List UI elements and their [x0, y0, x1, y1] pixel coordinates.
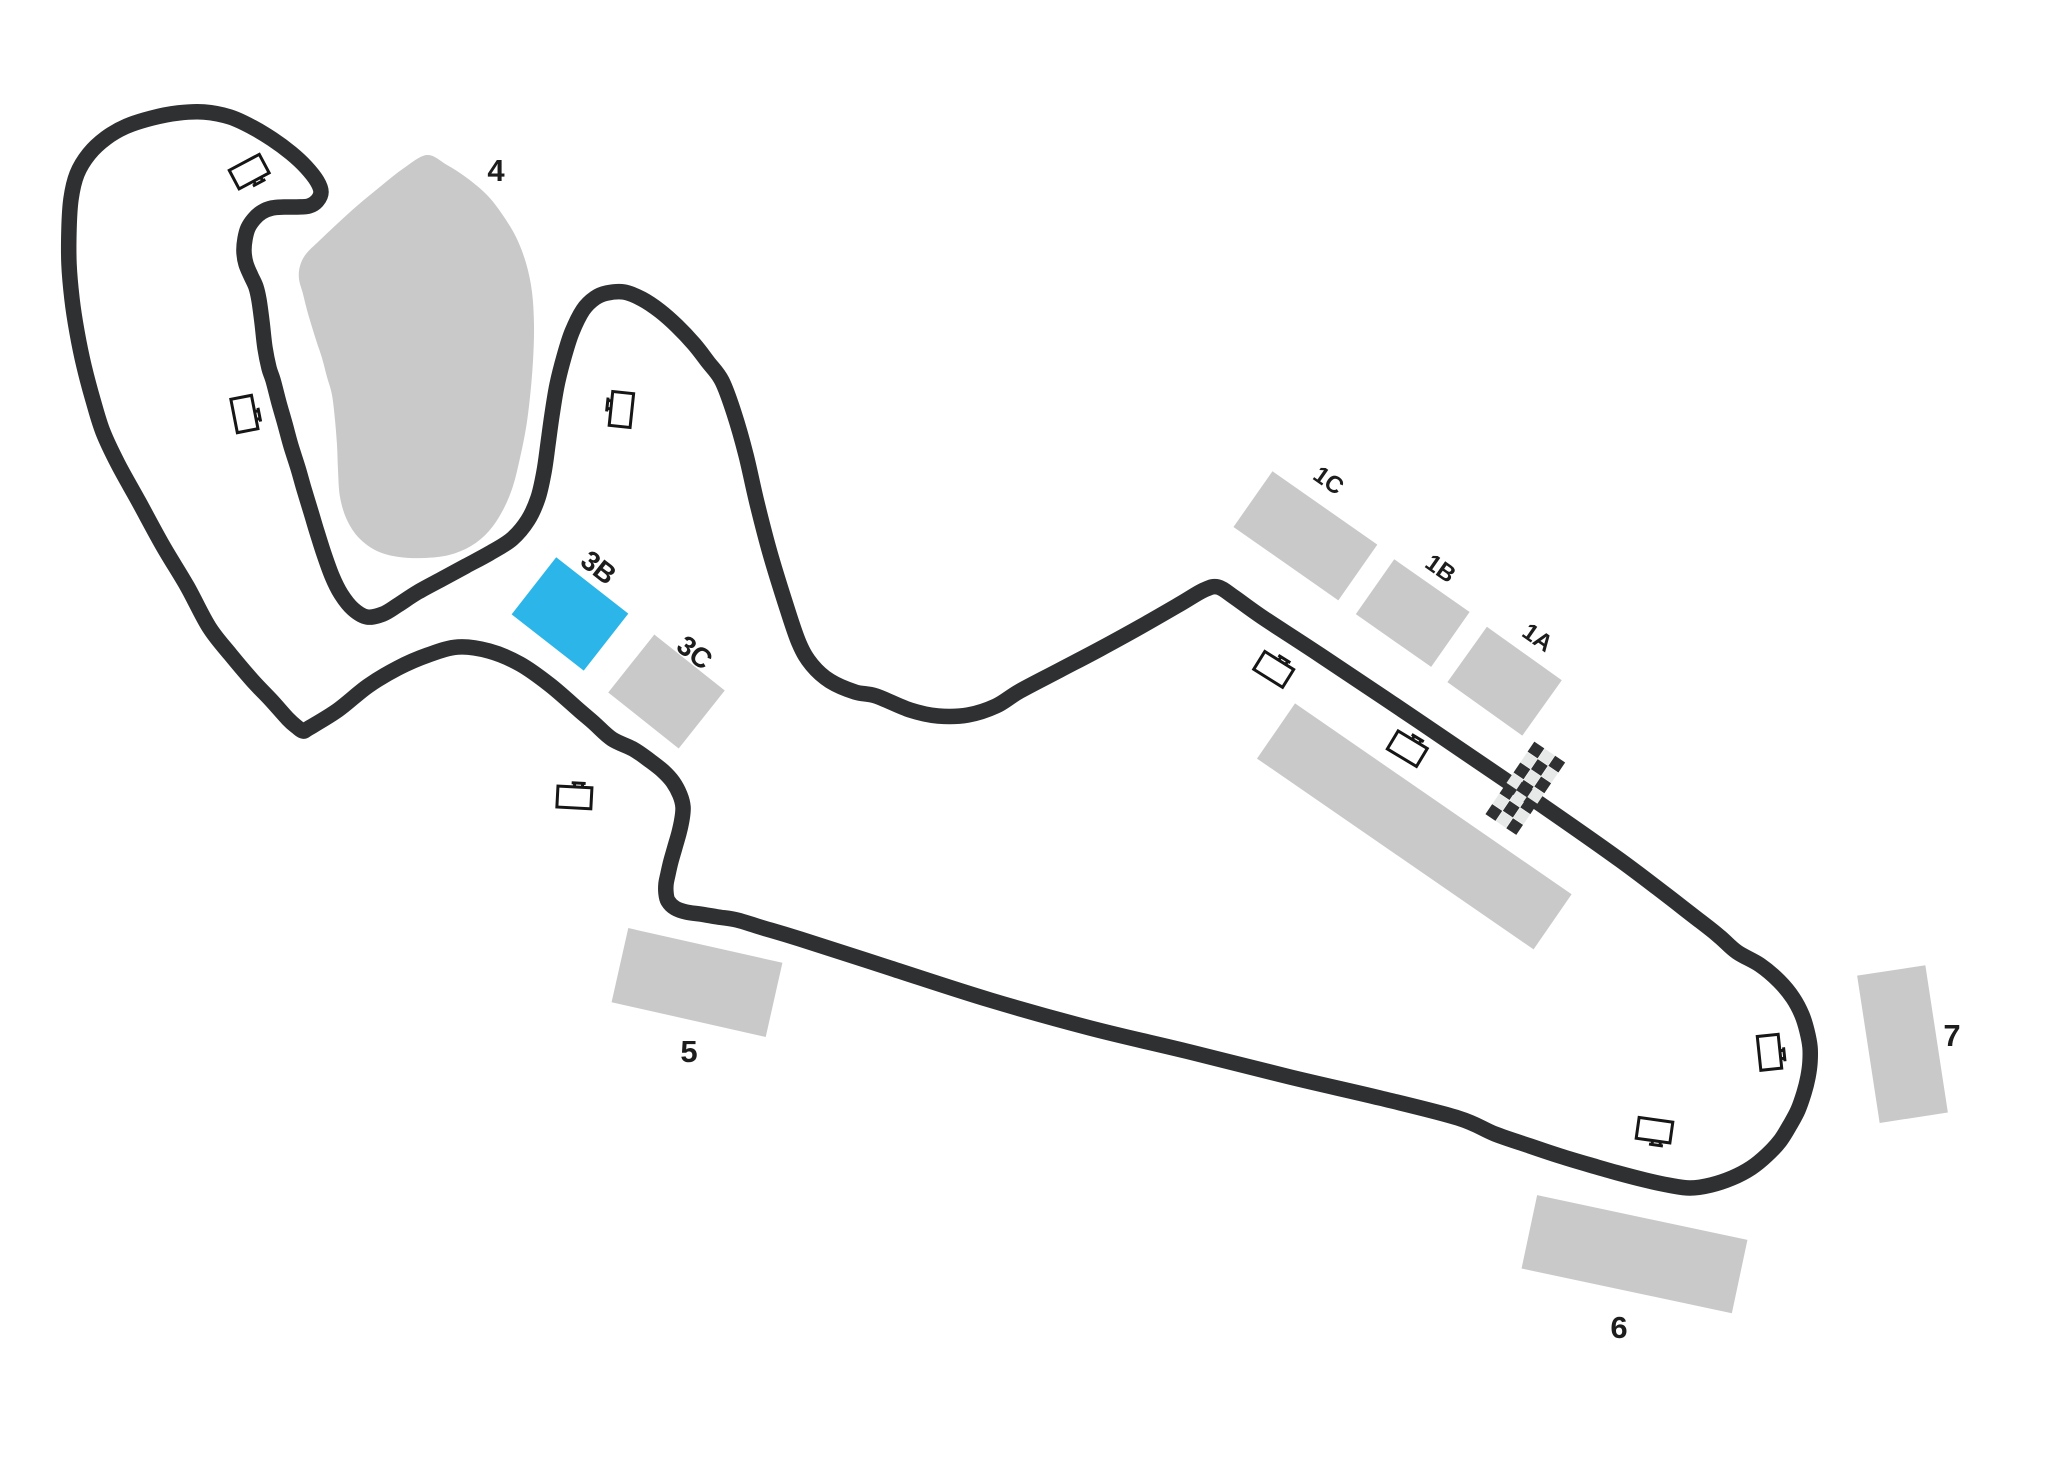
- svg-text:6: 6: [1610, 1310, 1627, 1345]
- svg-text:7: 7: [1943, 1018, 1960, 1053]
- svg-text:5: 5: [680, 1034, 697, 1069]
- svg-text:4: 4: [487, 153, 505, 188]
